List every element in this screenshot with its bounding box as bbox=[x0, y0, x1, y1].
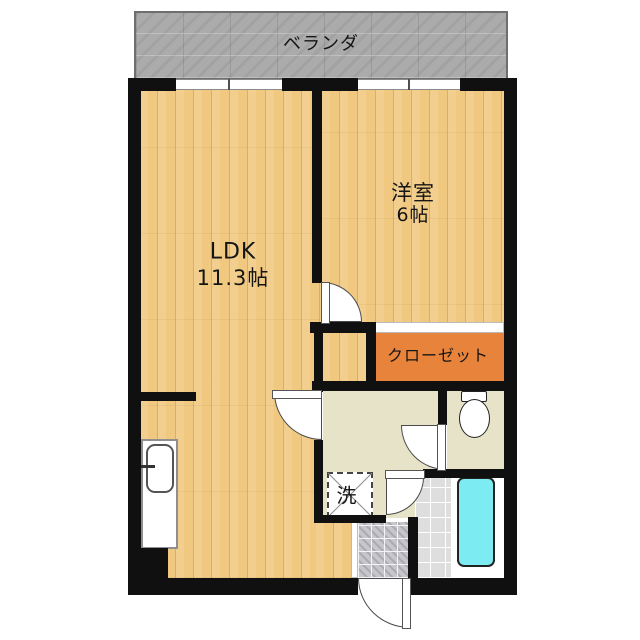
outer-wall-bottom-left bbox=[128, 578, 358, 595]
ldk-size-label: 11.3帖 bbox=[197, 266, 270, 290]
entrance-floor bbox=[358, 522, 408, 578]
outer-wall-left bbox=[128, 78, 141, 595]
ldk-window bbox=[176, 79, 282, 90]
outer-wall-right bbox=[504, 78, 517, 595]
bathtub bbox=[457, 477, 495, 567]
wall-kitchen-stub bbox=[130, 392, 196, 401]
floor-plan: ベランダ クローゼット 洗 bbox=[0, 0, 640, 640]
closet-sliding-door bbox=[375, 322, 504, 333]
wall-washroom-left-lower bbox=[314, 440, 323, 523]
toilet-door-leaf bbox=[437, 424, 446, 471]
wall-bathroom-top bbox=[423, 469, 504, 478]
western-room-window bbox=[358, 79, 460, 90]
wall-toilet-left bbox=[438, 391, 447, 425]
outer-wall-top-1 bbox=[128, 78, 176, 91]
wall-kitchen-block bbox=[130, 548, 168, 579]
wall-washroom-top bbox=[312, 381, 504, 391]
front-door-leaf bbox=[402, 578, 411, 629]
balcony-label: ベランダ bbox=[283, 35, 359, 56]
wall-ldk-western bbox=[312, 88, 322, 283]
outer-wall-bottom-right bbox=[410, 578, 517, 595]
window-mullion-icon bbox=[408, 79, 410, 90]
western-room-size-label: 6帖 bbox=[396, 205, 429, 227]
washer-label: 洗 bbox=[337, 485, 358, 508]
outer-wall-top-3 bbox=[460, 78, 517, 91]
wall-washroom-left-upper bbox=[314, 322, 323, 392]
ldk-label: LDK bbox=[210, 239, 257, 264]
wall-washroom-bottom bbox=[314, 515, 386, 523]
closet-label: クローゼット bbox=[387, 347, 489, 365]
entrance-step bbox=[351, 522, 358, 578]
toilet-bowl bbox=[459, 399, 490, 438]
western-room-door-leaf bbox=[321, 282, 330, 324]
kitchen-faucet-icon bbox=[141, 465, 155, 468]
window-mullion-icon bbox=[228, 79, 230, 90]
kitchen-sink bbox=[146, 444, 174, 493]
wall-entrance-right bbox=[408, 517, 418, 578]
washroom-door-leaf bbox=[272, 390, 322, 399]
bathroom-door-leaf bbox=[385, 470, 425, 479]
western-room-label: 洋室 bbox=[391, 181, 435, 205]
